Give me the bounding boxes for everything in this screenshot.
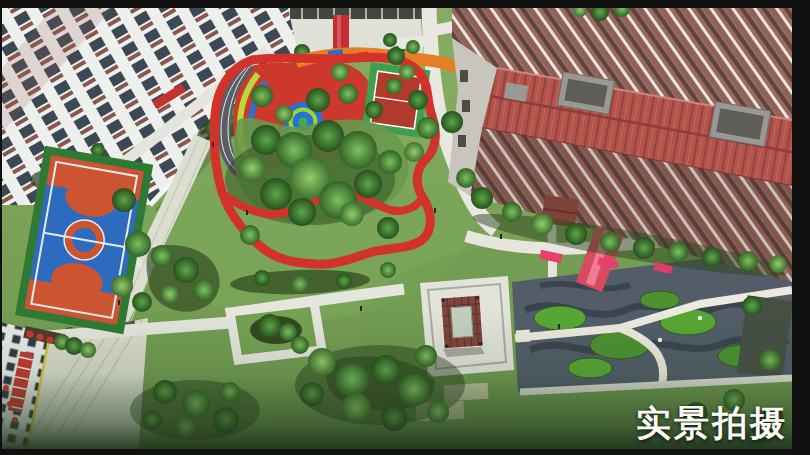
caption-watermark: 实景拍摄 [636, 400, 788, 447]
aerial-photo [0, 0, 810, 455]
screenshot: 实景拍摄 [0, 0, 810, 455]
